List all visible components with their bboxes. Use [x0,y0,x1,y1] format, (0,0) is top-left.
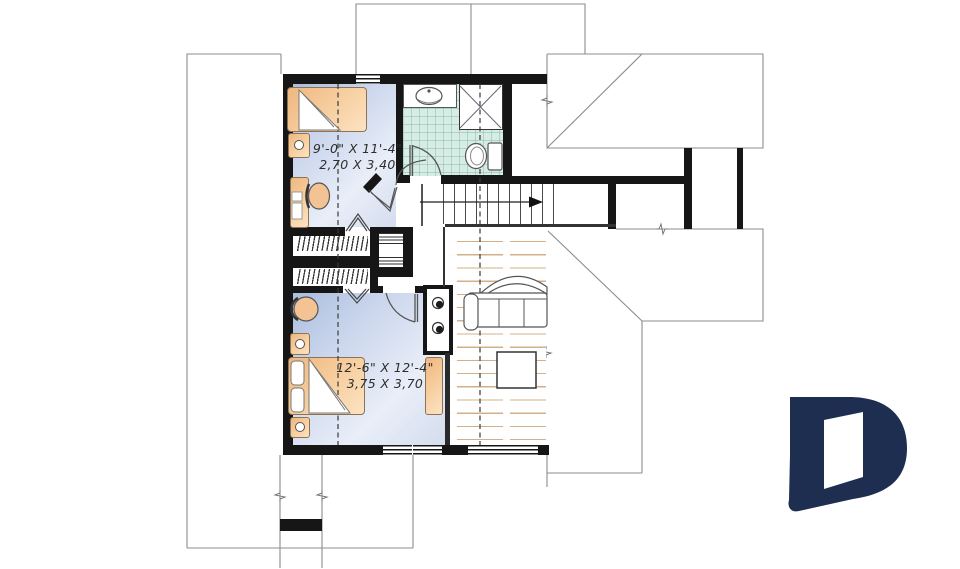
bed1-blanket-fold [299,90,340,130]
closet1-bifold-door [346,214,370,231]
detail-layer [0,0,960,569]
toilet-icon [466,143,503,170]
desk-items [292,192,302,219]
bedroom2-dimension-imperial: 12'-6" X 12'-4" [325,360,445,375]
bedroom1-dimension-imperial: 9'-0" X 11'-4" [300,141,415,156]
coffee-table [497,352,536,388]
chimney-flues [433,298,444,334]
desk-chair [307,183,330,209]
bedroom2-dimension-metric: 3,75 X 3,70 [325,376,445,391]
tub-chair [291,297,318,321]
bed2-pillows [291,361,304,412]
stair-up-arrow-icon [420,197,543,208]
floor-plan: 9'-0" X 11'-4" 2,70 X 3,40 12'-6" X 12'-… [0,0,960,569]
sofa [464,276,547,330]
bedroom1-dimension-metric: 2,70 X 3,40 [300,157,415,172]
bedroom2-door [386,293,418,322]
closet2-bifold-door [345,289,369,303]
sink-icon [416,88,442,105]
